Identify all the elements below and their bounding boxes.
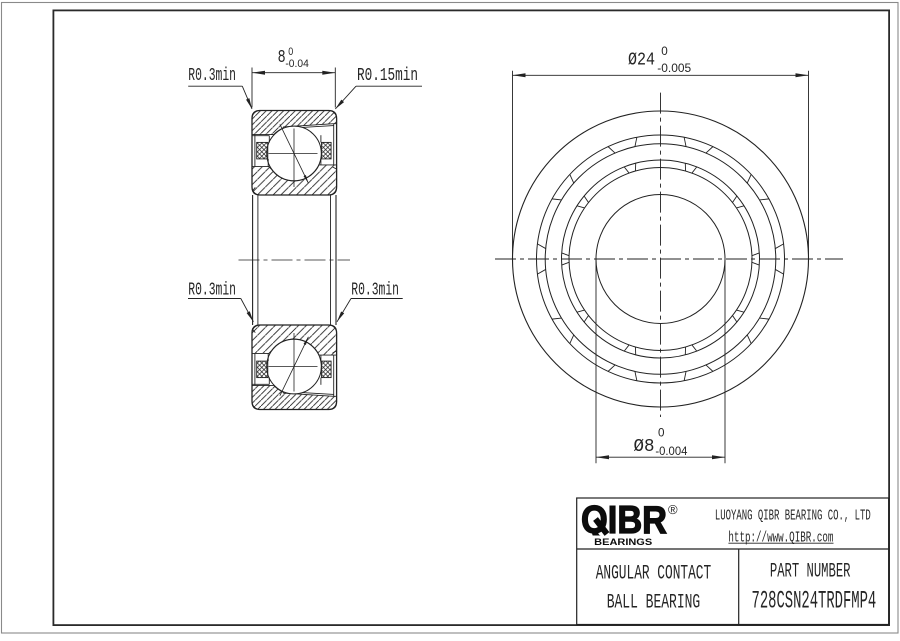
svg-text:BALL BEARING: BALL BEARING xyxy=(607,592,701,615)
svg-text:http://www.QIBR.com: http://www.QIBR.com xyxy=(728,529,833,546)
svg-text:8: 8 xyxy=(278,48,286,68)
svg-text:Ø24: Ø24 xyxy=(628,51,655,71)
svg-text:R0.15min: R0.15min xyxy=(357,66,418,86)
svg-text:0: 0 xyxy=(288,46,293,58)
svg-text:®: ® xyxy=(668,502,678,517)
svg-text:-0.004: -0.004 xyxy=(655,446,688,458)
svg-text:R0.3min: R0.3min xyxy=(188,281,236,301)
svg-text:PART NUMBER: PART NUMBER xyxy=(770,560,851,583)
svg-text:R0.3min: R0.3min xyxy=(351,281,399,301)
svg-text:-0.04: -0.04 xyxy=(285,58,308,70)
svg-text:0: 0 xyxy=(661,44,668,58)
svg-text:ANGULAR CONTACT: ANGULAR CONTACT xyxy=(596,562,712,585)
svg-text:LUOYANG QIBR BEARING CO., LTD: LUOYANG QIBR BEARING CO., LTD xyxy=(715,508,871,525)
svg-text:-0.005: -0.005 xyxy=(657,63,691,75)
svg-text:BEARINGS: BEARINGS xyxy=(594,537,653,548)
svg-text:R0.3min: R0.3min xyxy=(188,66,236,86)
svg-text:0: 0 xyxy=(658,425,665,439)
svg-text:728CSN24TRDFMP4: 728CSN24TRDFMP4 xyxy=(752,587,877,616)
svg-text:Ø8: Ø8 xyxy=(634,437,655,457)
